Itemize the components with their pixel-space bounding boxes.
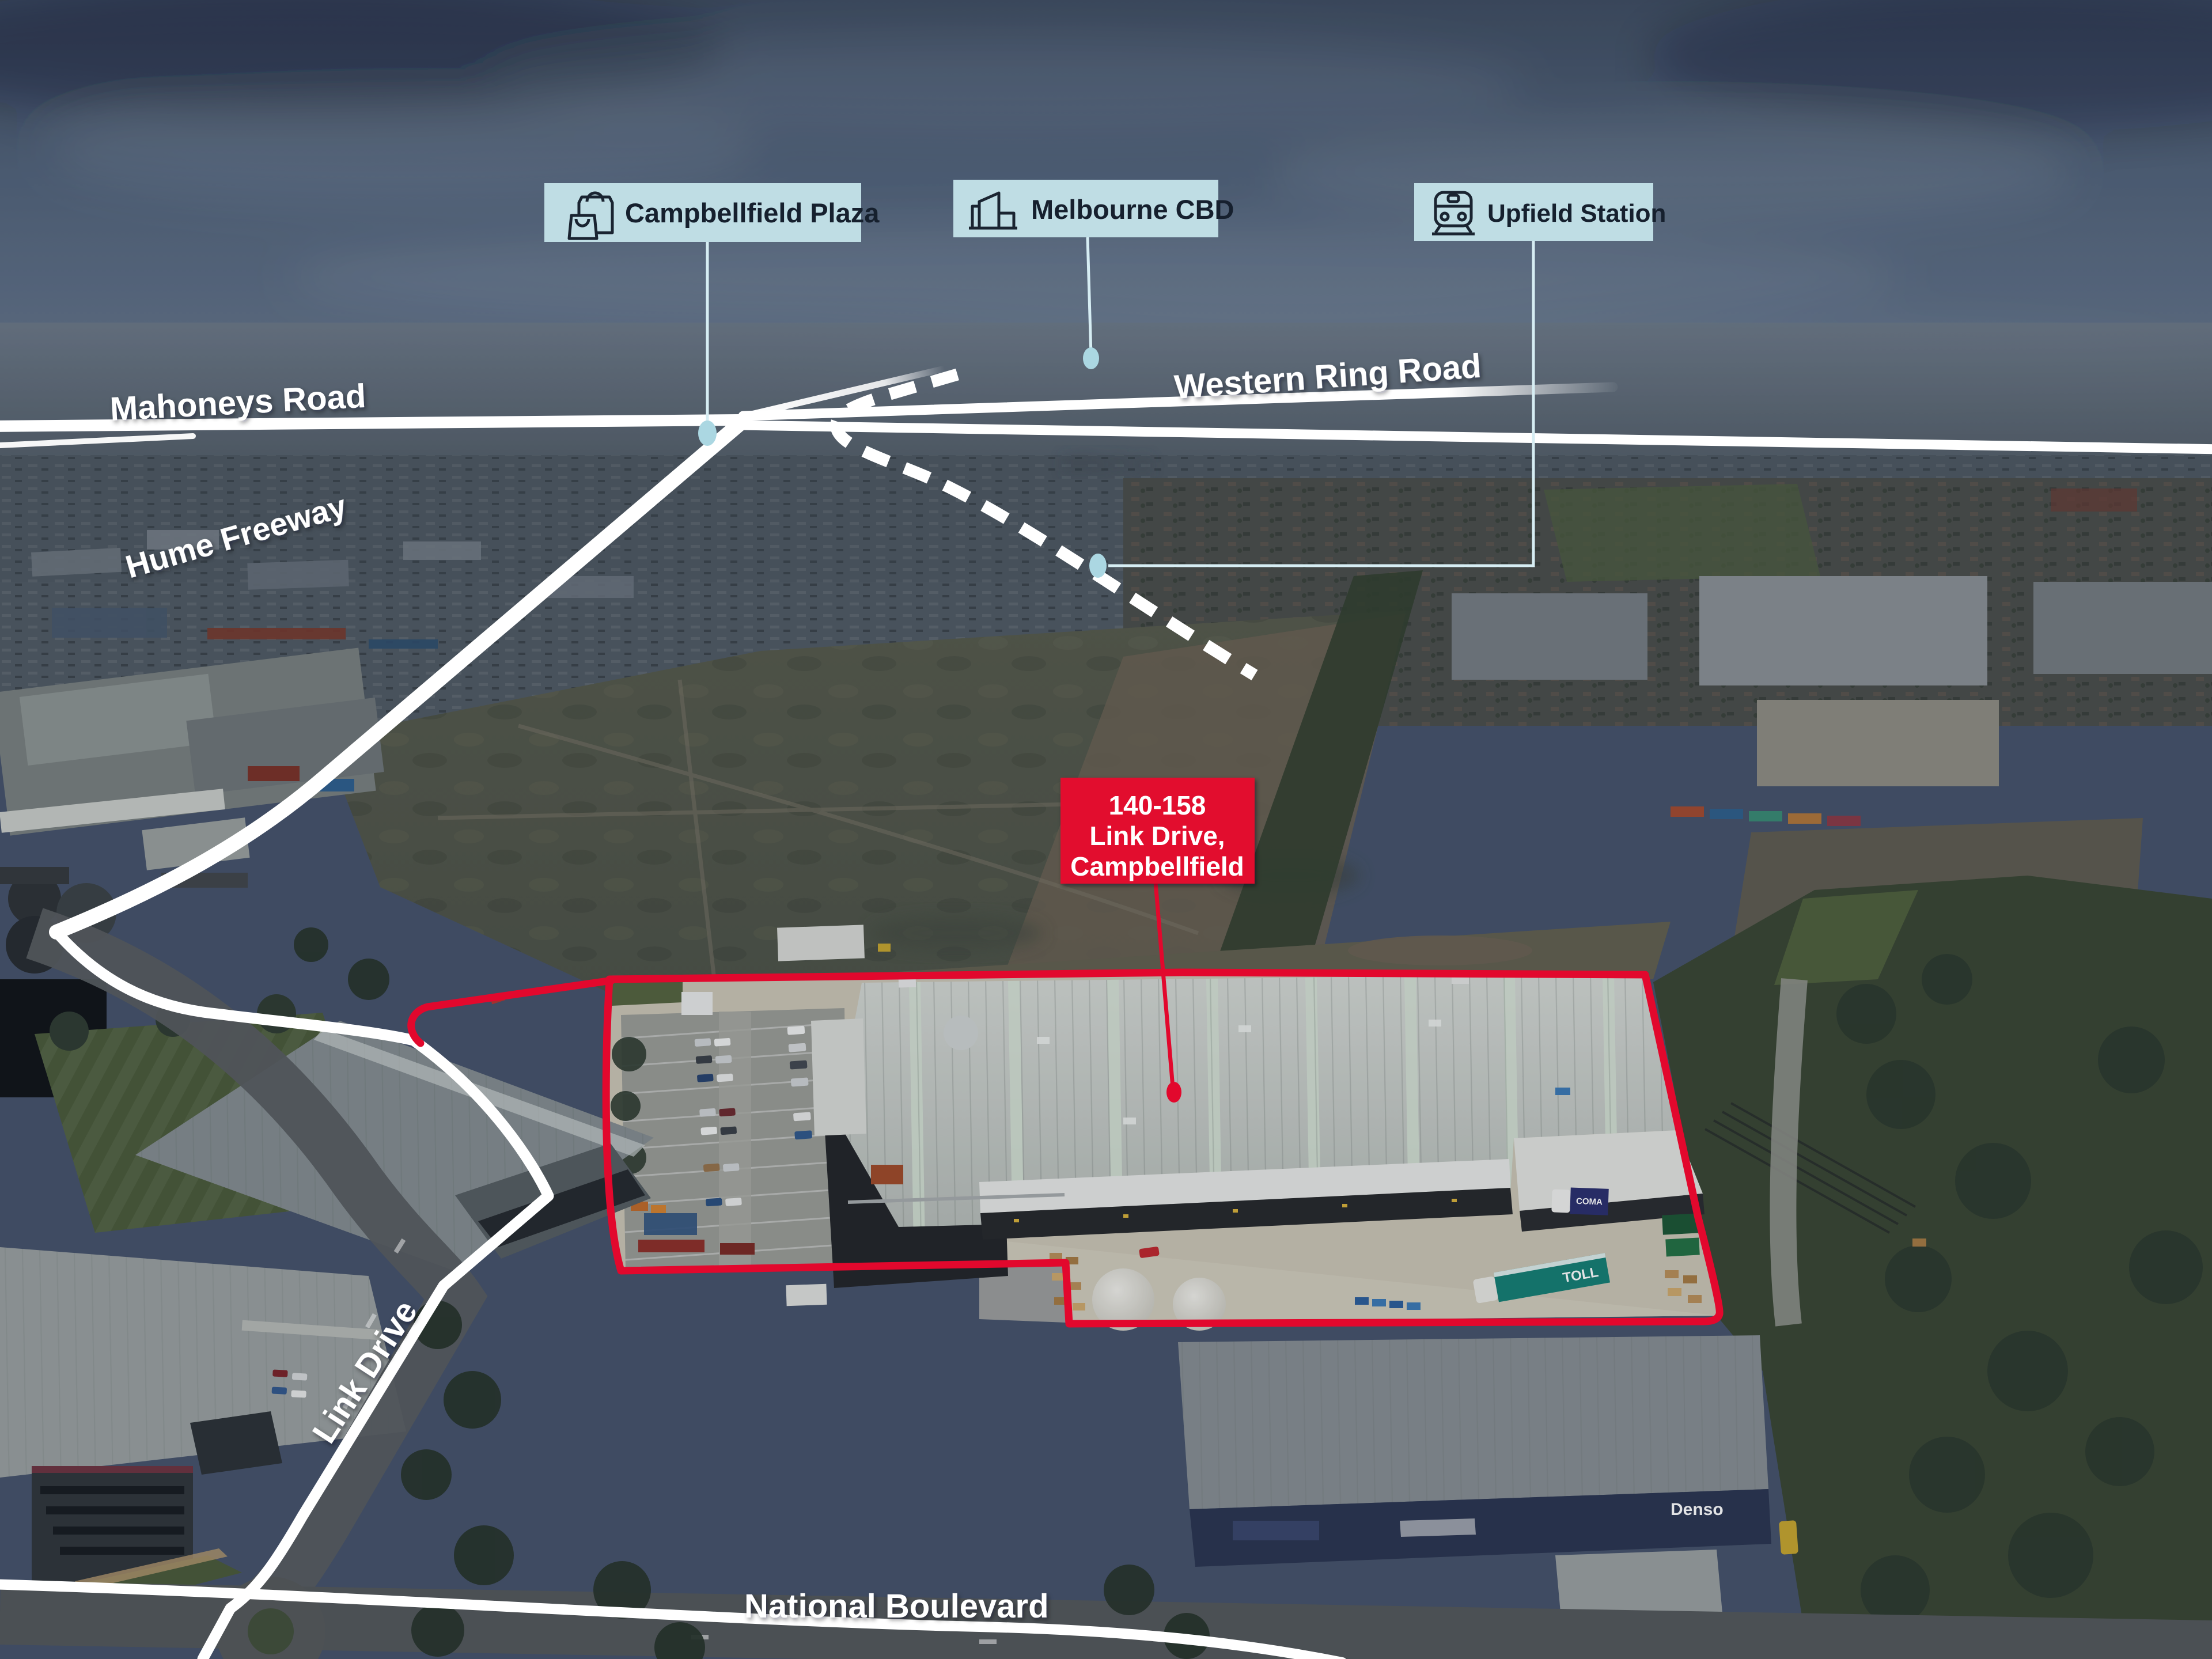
callout-label: Campbellfield Plaza (625, 198, 880, 228)
property-address-line1: 140-158 (1109, 790, 1206, 820)
aerial-property-image: COMA TOLL (0, 0, 2212, 1659)
callout-label: Upfield Station (1487, 199, 1666, 228)
property-address-line2: Link Drive, (1089, 821, 1225, 851)
campbellfield-plaza-dot (698, 421, 717, 446)
callout-campbellfield-plaza: Campbellfield Plaza (544, 183, 880, 242)
property-address-line3: Campbellfield (1070, 851, 1244, 881)
road-label-national: National Boulevard (744, 1588, 1049, 1625)
scene: COMA TOLL (0, 0, 2212, 1659)
callout-label: Melbourne CBD (1031, 194, 1234, 225)
property-pointer-dot (1166, 1082, 1181, 1103)
melbourne-cbd-dot (1083, 347, 1099, 369)
upfield-station-dot (1089, 554, 1107, 578)
callout-upfield-station: Upfield Station (1414, 183, 1666, 241)
callout-melbourne-cbd: Melbourne CBD (953, 180, 1234, 237)
